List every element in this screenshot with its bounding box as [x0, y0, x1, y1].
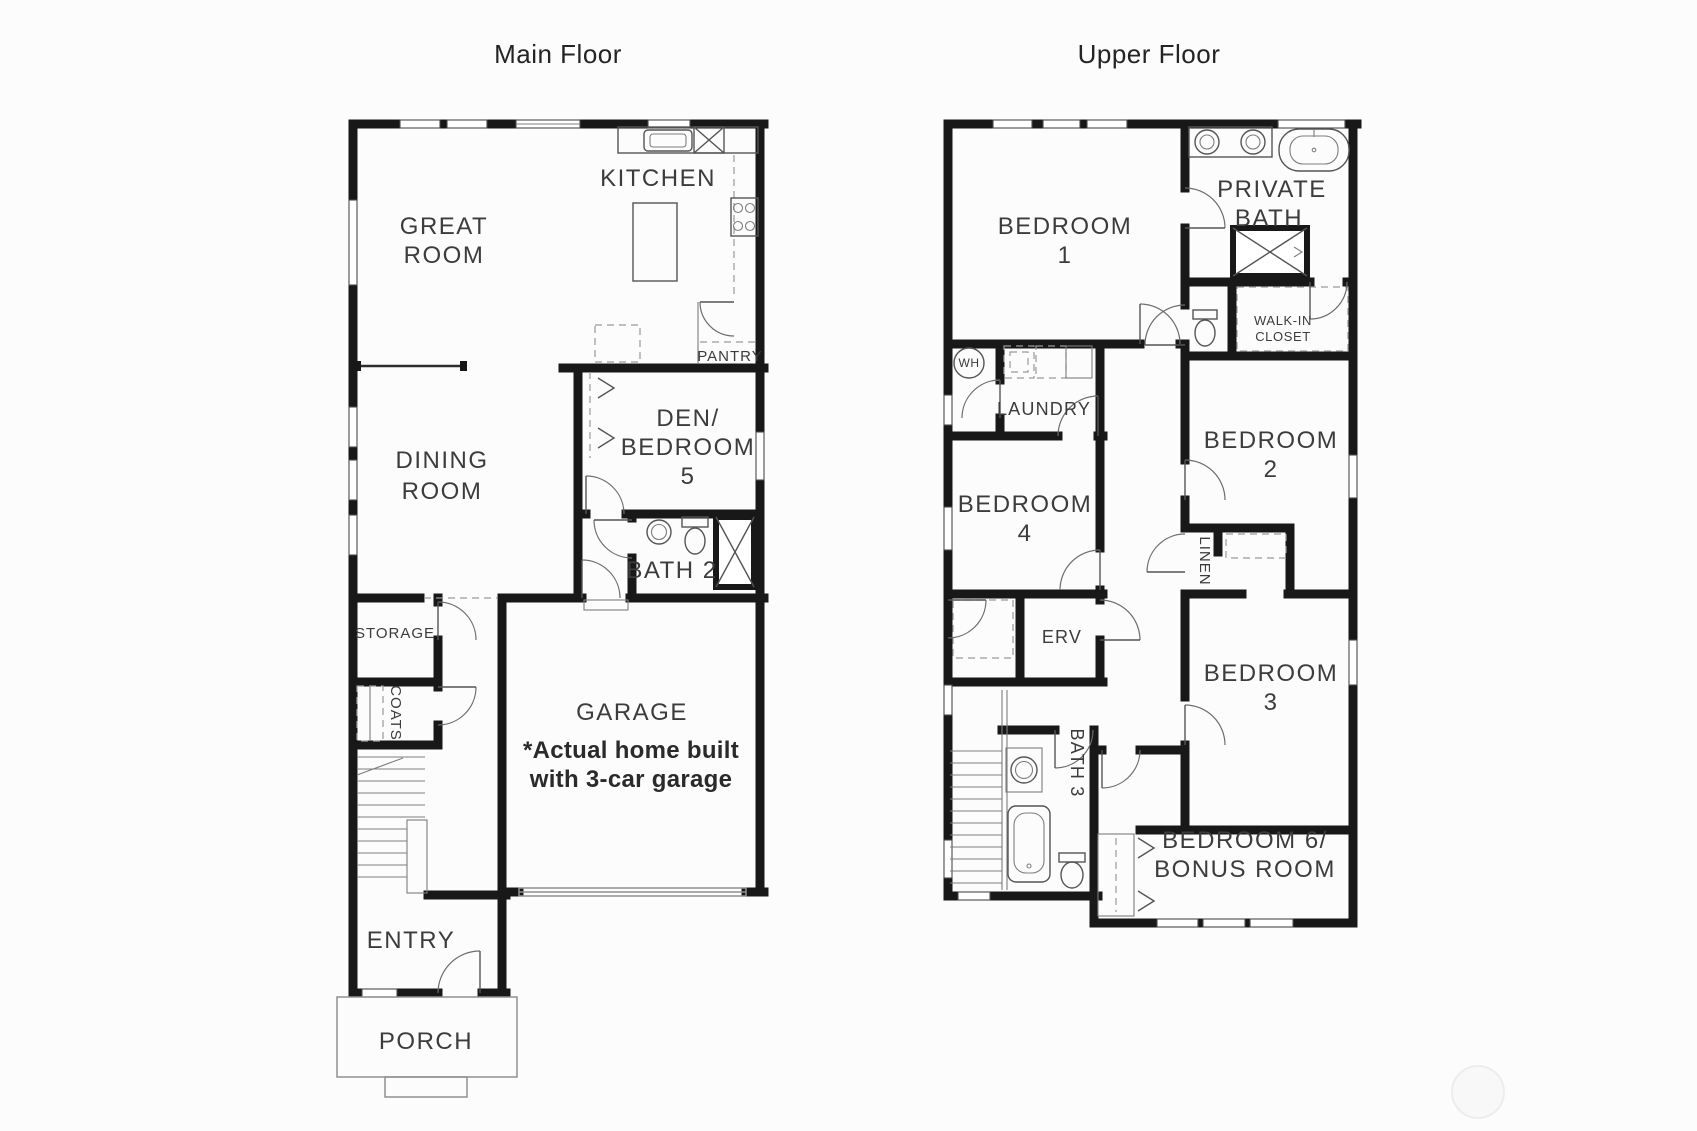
- kitchen-counter: [618, 127, 758, 153]
- private-bath-label2: BATH: [1235, 205, 1303, 232]
- bedroom3-label2: 3: [1264, 689, 1279, 716]
- storage-label: STORAGE: [355, 625, 435, 642]
- erv-label: ERV: [1042, 627, 1082, 647]
- watermark-circle: [1452, 1066, 1504, 1118]
- garage-label: GARAGE: [576, 699, 688, 726]
- linen-shelves: [1226, 534, 1286, 558]
- floorplan-canvas: Main Floor: [0, 0, 1697, 1131]
- coats-label: COATS: [387, 685, 404, 741]
- bedroom1-label2: 1: [1058, 242, 1073, 269]
- den-bedroom5-label2: BEDROOM: [621, 434, 756, 461]
- upper-floor-plan: Upper Floor: [944, 39, 1357, 927]
- great-room-label: GREAT: [400, 213, 488, 240]
- upper-stairs: [950, 690, 1007, 890]
- washer-dryer: [1004, 346, 1092, 378]
- kitchen-island: [633, 203, 677, 281]
- bath3-label: BATH 3: [1067, 729, 1087, 798]
- main-stairs: [357, 757, 427, 893]
- private-bath-label: PRIVATE: [1217, 176, 1327, 203]
- laundry-label: LAUNDRY: [997, 399, 1091, 419]
- private-bath-vanity: [1189, 127, 1272, 157]
- den-bedroom5-label: DEN/: [656, 405, 719, 432]
- bedroom3-label: BEDROOM: [1204, 660, 1339, 687]
- shower: [1233, 228, 1307, 276]
- garage-door: [519, 888, 746, 896]
- main-floor-doors: [438, 476, 632, 993]
- bedroom6-closet: [1098, 834, 1154, 916]
- garage-note-line2: with 3-car garage: [529, 766, 733, 793]
- garage-note-line1: *Actual home built: [523, 737, 739, 764]
- bedroom4-label: BEDROOM: [958, 491, 1093, 518]
- entry-label: ENTRY: [367, 927, 455, 954]
- refrigerator: [694, 127, 724, 153]
- bedroom1-label: BEDROOM: [998, 213, 1133, 240]
- bedroom2-label2: 2: [1264, 456, 1279, 483]
- dining-room-label2: ROOM: [402, 478, 483, 505]
- wh-label: WH: [959, 356, 980, 370]
- bedroom4-label2: 4: [1018, 520, 1033, 547]
- kitchen-label: KITCHEN: [600, 165, 716, 192]
- linen-label: LINEN: [1196, 536, 1213, 585]
- great-room-label2: ROOM: [404, 242, 485, 269]
- erv-closet-outline: [953, 600, 1013, 658]
- bedroom6-label2: BONUS ROOM: [1154, 856, 1336, 883]
- walk-in-closet-label: WALK-IN: [1254, 313, 1312, 328]
- den-closet: [590, 372, 614, 458]
- toilet-room: [1193, 310, 1217, 346]
- bedroom6-label: BEDROOM 6/: [1162, 827, 1328, 854]
- stove: [731, 155, 758, 295]
- soaking-tub: [1279, 129, 1349, 171]
- den-bedroom5-label3: 5: [681, 463, 696, 490]
- pantry-label: PANTRY: [697, 348, 762, 365]
- bath2-label: BATH 2: [626, 557, 717, 584]
- dining-room-label: DINING: [396, 447, 489, 474]
- upper-floor-title: Upper Floor: [1078, 39, 1221, 69]
- main-floor-title: Main Floor: [494, 39, 622, 69]
- walk-in-closet-label2: CLOSET: [1255, 329, 1311, 344]
- porch-label: PORCH: [379, 1028, 473, 1055]
- bedroom2-label: BEDROOM: [1204, 427, 1339, 454]
- main-floor-plan: Main Floor: [337, 39, 764, 1097]
- coats-closet: [357, 686, 383, 741]
